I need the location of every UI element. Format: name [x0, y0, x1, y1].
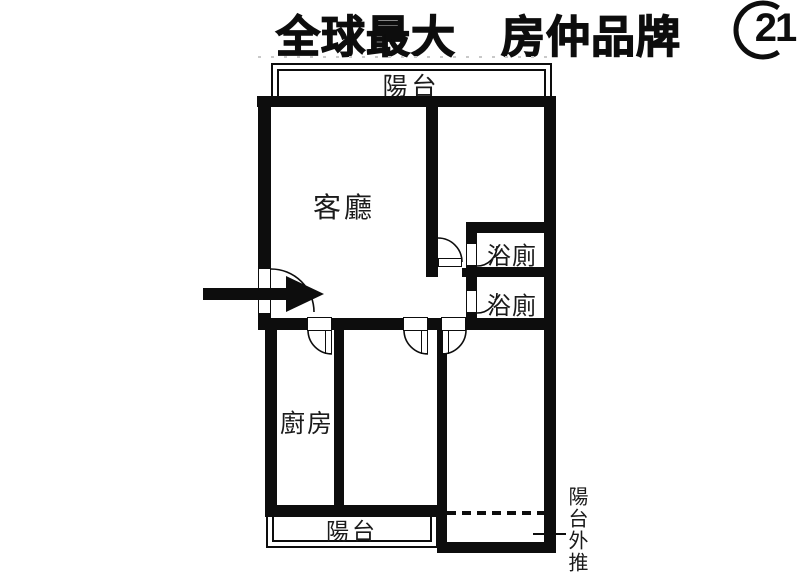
- entrance-door-arc: [271, 269, 314, 312]
- wall-bottom-left: [265, 505, 447, 517]
- label-bathroom-lower: 浴廁: [487, 286, 537, 321]
- label-kitchen: 廚房: [280, 404, 334, 440]
- wall-kitchen-divider: [334, 330, 344, 517]
- middle-room-door-threshold: [403, 317, 428, 331]
- right-room-door-panel: [442, 330, 449, 354]
- kitchen-door-threshold: [307, 317, 332, 331]
- balcony-bottom: 陽台: [266, 515, 438, 548]
- floor-plan-page: 全球最大 房仲品牌 21 陽台 陽台: [0, 0, 800, 582]
- wall-bedroom-bottom: [466, 222, 556, 233]
- label-living-room: 客廳: [313, 186, 375, 226]
- corridor-door-panel: [438, 258, 462, 267]
- wall-room-divider-right: [437, 330, 447, 553]
- right-room-door-threshold: [441, 317, 466, 331]
- balcony-top: 陽台: [271, 63, 552, 100]
- balcony-bottom-inner: 陽台: [272, 517, 432, 542]
- balcony-top-inner: 陽台: [277, 69, 546, 98]
- bathroom-upper-door-panel: [466, 243, 477, 266]
- wall-top: [257, 96, 556, 107]
- entrance-door-panel: [258, 268, 271, 314]
- century21-logo-icon: 21: [729, 0, 800, 68]
- corridor-door-opening: [438, 268, 462, 277]
- middle-room-door-panel: [421, 330, 428, 354]
- wall-living-right: [426, 96, 438, 268]
- wall-bottom-right: [437, 542, 556, 553]
- brand-title: 全球最大 房仲品牌: [276, 1, 681, 65]
- bathroom-lower-door-panel: [466, 290, 477, 313]
- label-balcony-pushout: 陽台外推: [561, 486, 587, 586]
- logo-number: 21: [755, 6, 797, 50]
- wall-left-upper: [258, 96, 271, 271]
- wall-left-lower: [265, 318, 277, 517]
- label-bathroom-upper: 浴廁: [487, 236, 537, 271]
- kitchen-door-panel: [325, 330, 332, 354]
